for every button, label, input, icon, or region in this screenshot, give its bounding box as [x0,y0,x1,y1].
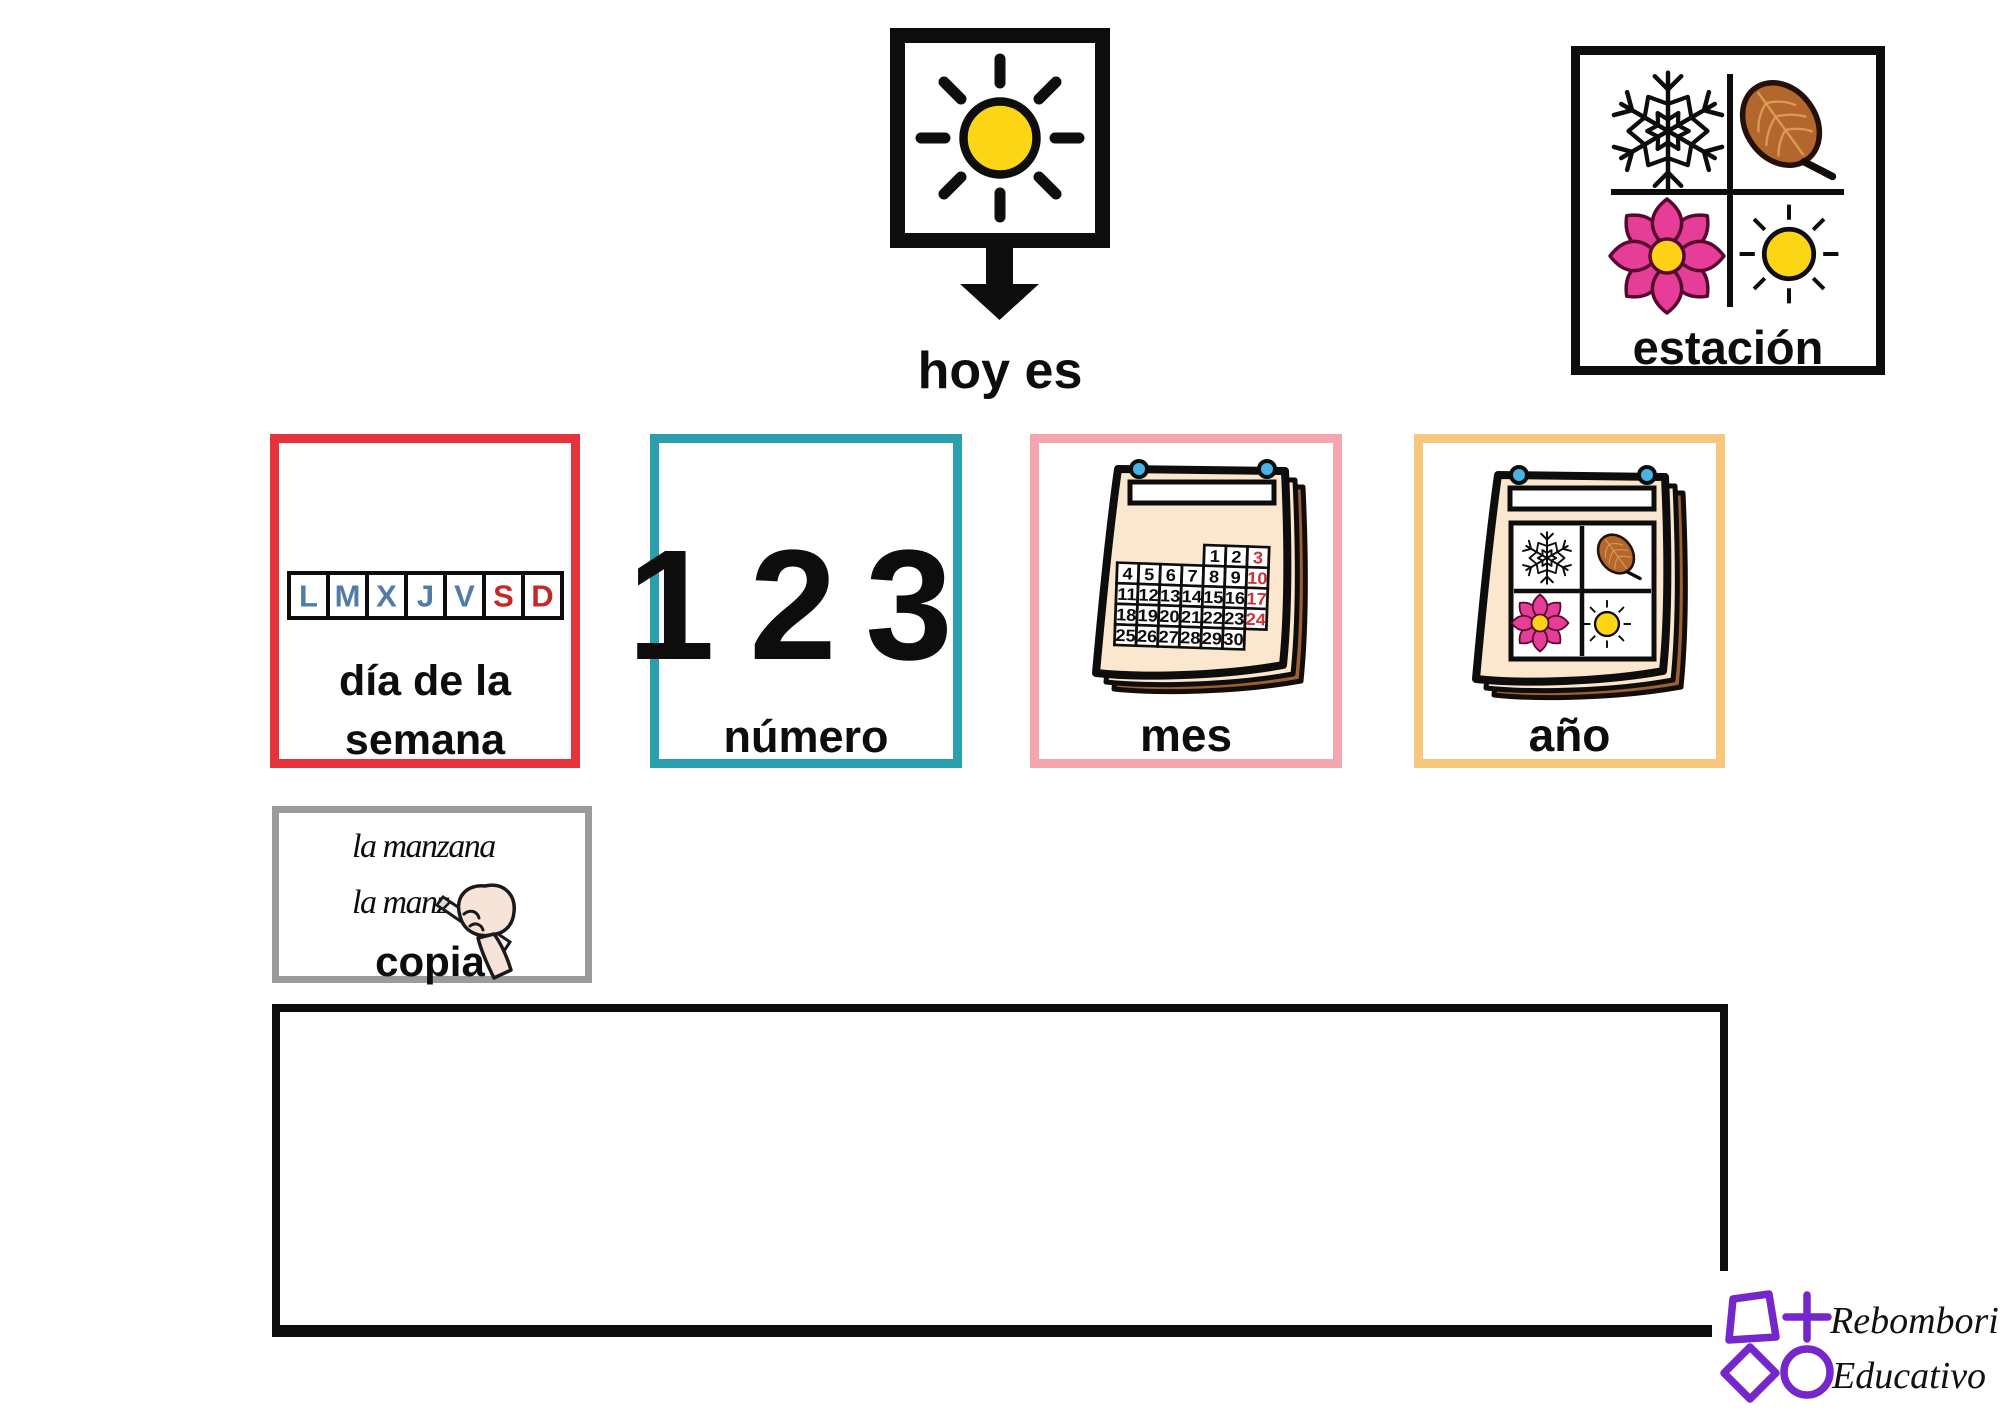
svg-text:2: 2 [1231,547,1242,567]
svg-text:27: 27 [1158,627,1179,647]
svg-text:24: 24 [1245,609,1266,629]
svg-text:Rebombori: Rebombori [1829,1300,1999,1342]
svg-text:7: 7 [1187,566,1198,586]
svg-text:8: 8 [1209,567,1220,587]
svg-text:12: 12 [1138,585,1159,605]
svg-text:V: V [454,579,475,614]
svg-text:21: 21 [1181,607,1202,627]
svg-text:26: 26 [1137,626,1158,646]
svg-text:15: 15 [1203,587,1224,607]
svg-text:S: S [493,579,514,614]
svg-text:30: 30 [1223,629,1244,649]
svg-text:13: 13 [1160,586,1181,606]
svg-text:18: 18 [1116,605,1137,625]
svg-text:16: 16 [1225,588,1246,608]
svg-text:1: 1 [1209,546,1220,566]
svg-text:4: 4 [1122,564,1133,584]
svg-text:J: J [417,579,434,614]
svg-text:5: 5 [1144,565,1155,585]
svg-text:28: 28 [1180,628,1201,648]
svg-text:25: 25 [1115,625,1136,645]
svg-text:L: L [299,579,318,614]
svg-text:M: M [335,579,361,614]
svg-text:22: 22 [1202,608,1223,628]
svg-text:20: 20 [1159,606,1180,626]
svg-text:6: 6 [1166,565,1177,585]
svg-text:9: 9 [1230,568,1241,588]
svg-text:X: X [376,579,397,614]
svg-text:Educativo: Educativo [1831,1355,1986,1397]
svg-text:19: 19 [1137,606,1158,626]
svg-text:10: 10 [1247,568,1268,588]
svg-text:23: 23 [1224,609,1245,629]
svg-text:11: 11 [1117,584,1137,604]
svg-text:3: 3 [1253,548,1264,568]
svg-text:14: 14 [1181,587,1202,607]
svg-text:29: 29 [1202,628,1223,648]
svg-text:17: 17 [1246,589,1267,609]
svg-text:D: D [531,579,553,614]
